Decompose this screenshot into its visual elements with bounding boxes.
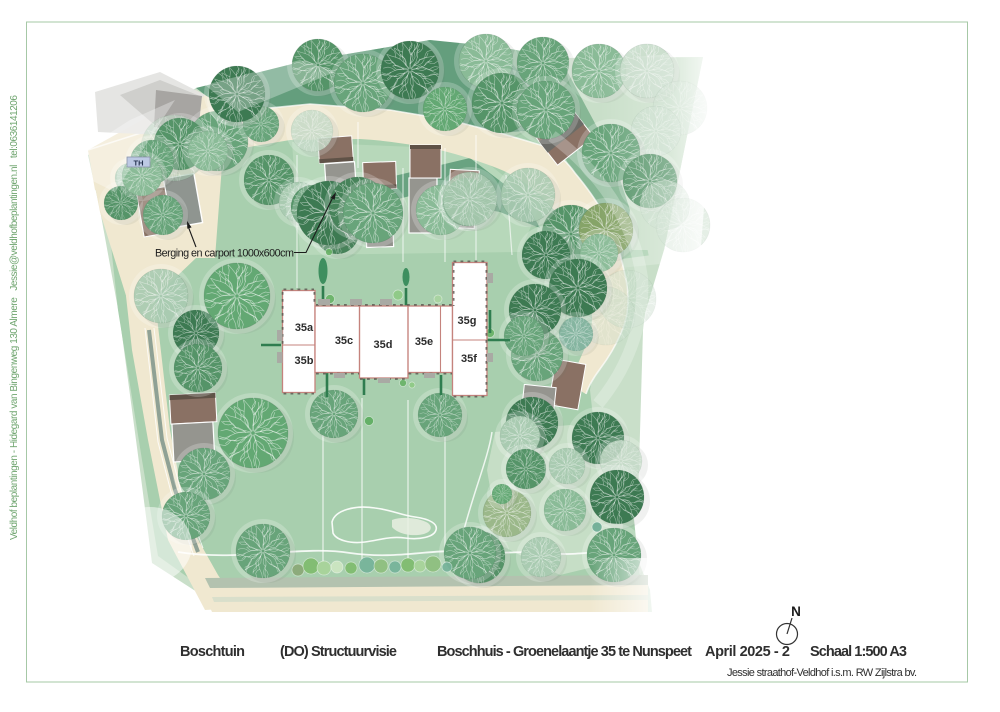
- svg-text:N: N: [791, 604, 801, 619]
- svg-text:35g: 35g: [458, 315, 477, 327]
- svg-text:TH: TH: [134, 159, 144, 168]
- svg-text:35a: 35a: [295, 322, 314, 334]
- svg-text:Boschhuis - Groenelaantje 35 t: Boschhuis - Groenelaantje 35 te Nunspeet: [437, 644, 692, 660]
- svg-text:Berging en carport 1000x600cm: Berging en carport 1000x600cm: [155, 248, 294, 260]
- svg-text:35e: 35e: [415, 336, 433, 348]
- svg-text:Veldhof beplantingen - Hidegar: Veldhof beplantingen - Hidegard van Bing…: [9, 95, 20, 540]
- svg-text:35f: 35f: [461, 353, 477, 365]
- svg-text:Schaal 1:500 A3: Schaal 1:500 A3: [810, 644, 907, 660]
- svg-text:(DO) Structuurvisie: (DO) Structuurvisie: [280, 644, 397, 660]
- svg-text:Boschtuin: Boschtuin: [180, 644, 245, 660]
- svg-text:Jessie straathof-Veldhof i.s.m: Jessie straathof-Veldhof i.s.m. RW Zijls…: [727, 667, 917, 679]
- svg-text:35b: 35b: [295, 355, 314, 367]
- svg-text:35d: 35d: [374, 339, 393, 351]
- svg-text:35c: 35c: [335, 335, 353, 347]
- svg-text:April 2025 - 2: April 2025 - 2: [705, 644, 790, 660]
